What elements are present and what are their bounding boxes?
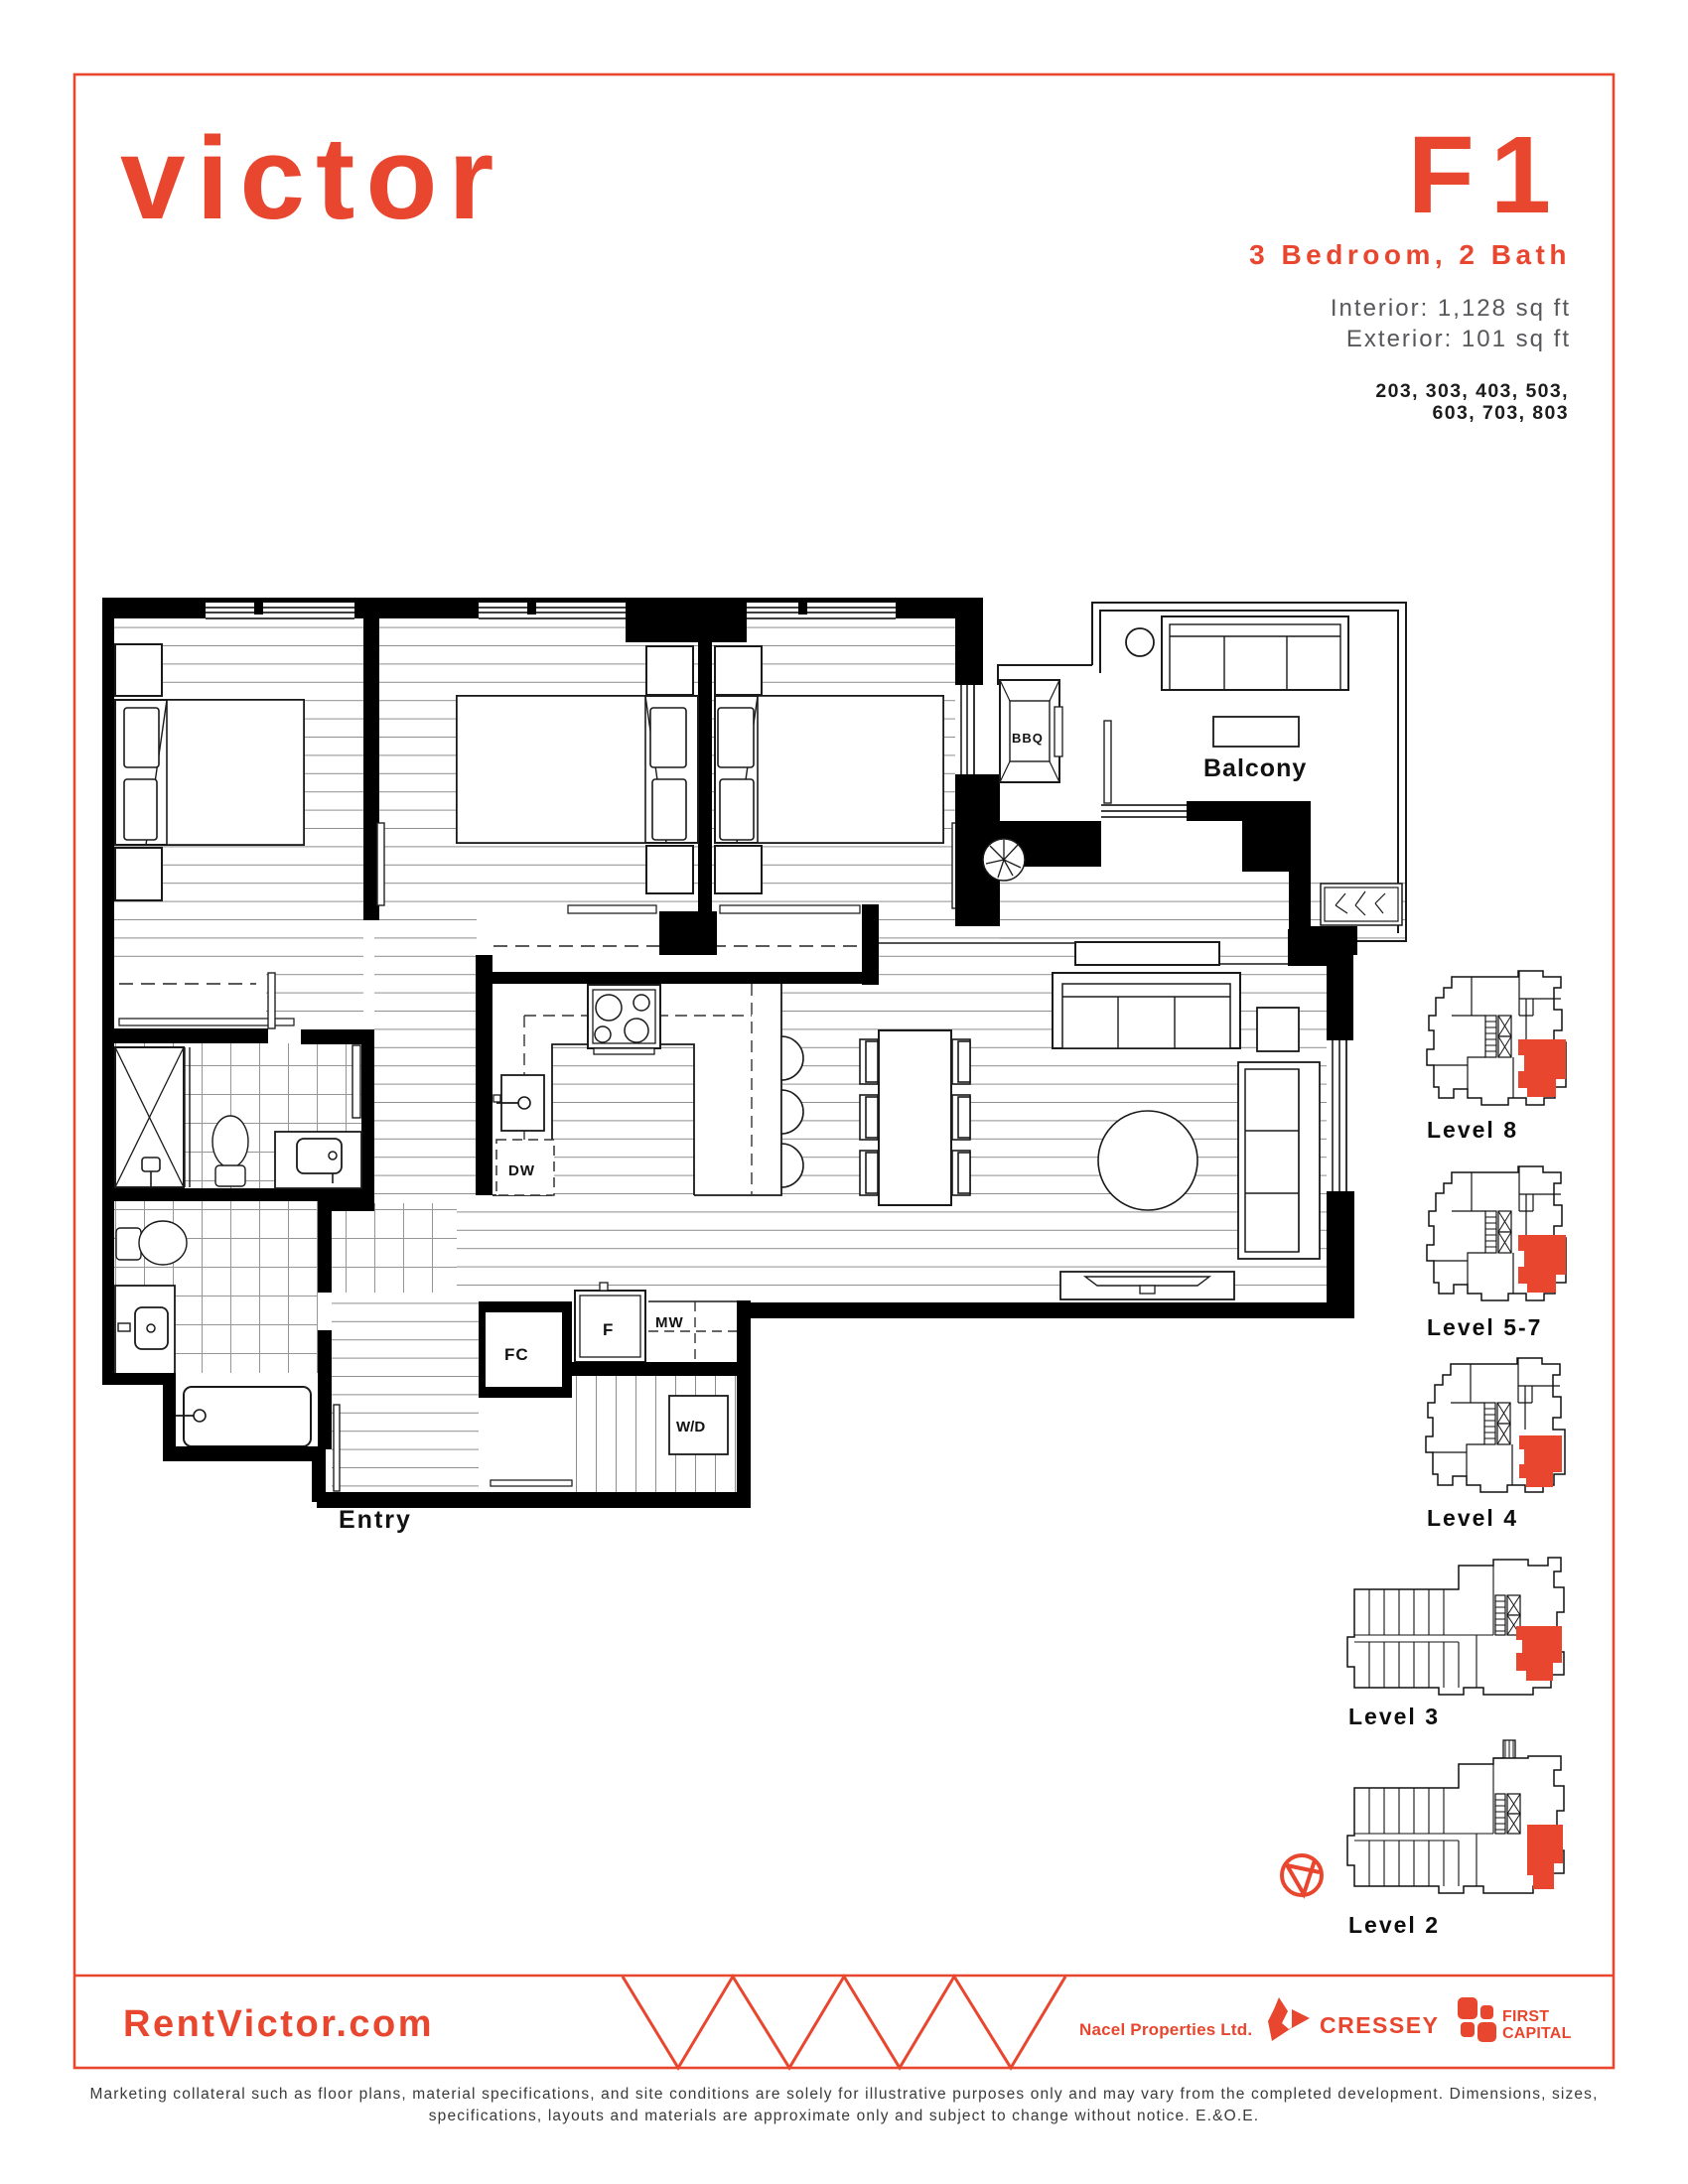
svg-text:CAPITAL: CAPITAL xyxy=(1502,2025,1572,2042)
svg-text:BBQ: BBQ xyxy=(1012,731,1044,746)
svg-text:CRESSEY: CRESSEY xyxy=(1320,2012,1439,2038)
svg-text:W/D: W/D xyxy=(676,1419,705,1435)
svg-text:Level 2: Level 2 xyxy=(1348,1912,1440,1938)
svg-text:MW: MW xyxy=(655,1314,684,1331)
svg-text:F: F xyxy=(603,1320,613,1339)
svg-text:Level 3: Level 3 xyxy=(1348,1704,1440,1729)
svg-text:Level 5-7: Level 5-7 xyxy=(1427,1314,1542,1340)
svg-text:FC: FC xyxy=(504,1345,529,1364)
svg-text:Entry: Entry xyxy=(339,1506,412,1534)
svg-text:FIRST: FIRST xyxy=(1502,2008,1549,2025)
svg-text:Level 8: Level 8 xyxy=(1427,1117,1518,1143)
svg-text:DW: DW xyxy=(508,1162,535,1179)
svg-text:Level 4: Level 4 xyxy=(1427,1505,1518,1531)
svg-text:Balcony: Balcony xyxy=(1203,754,1307,782)
